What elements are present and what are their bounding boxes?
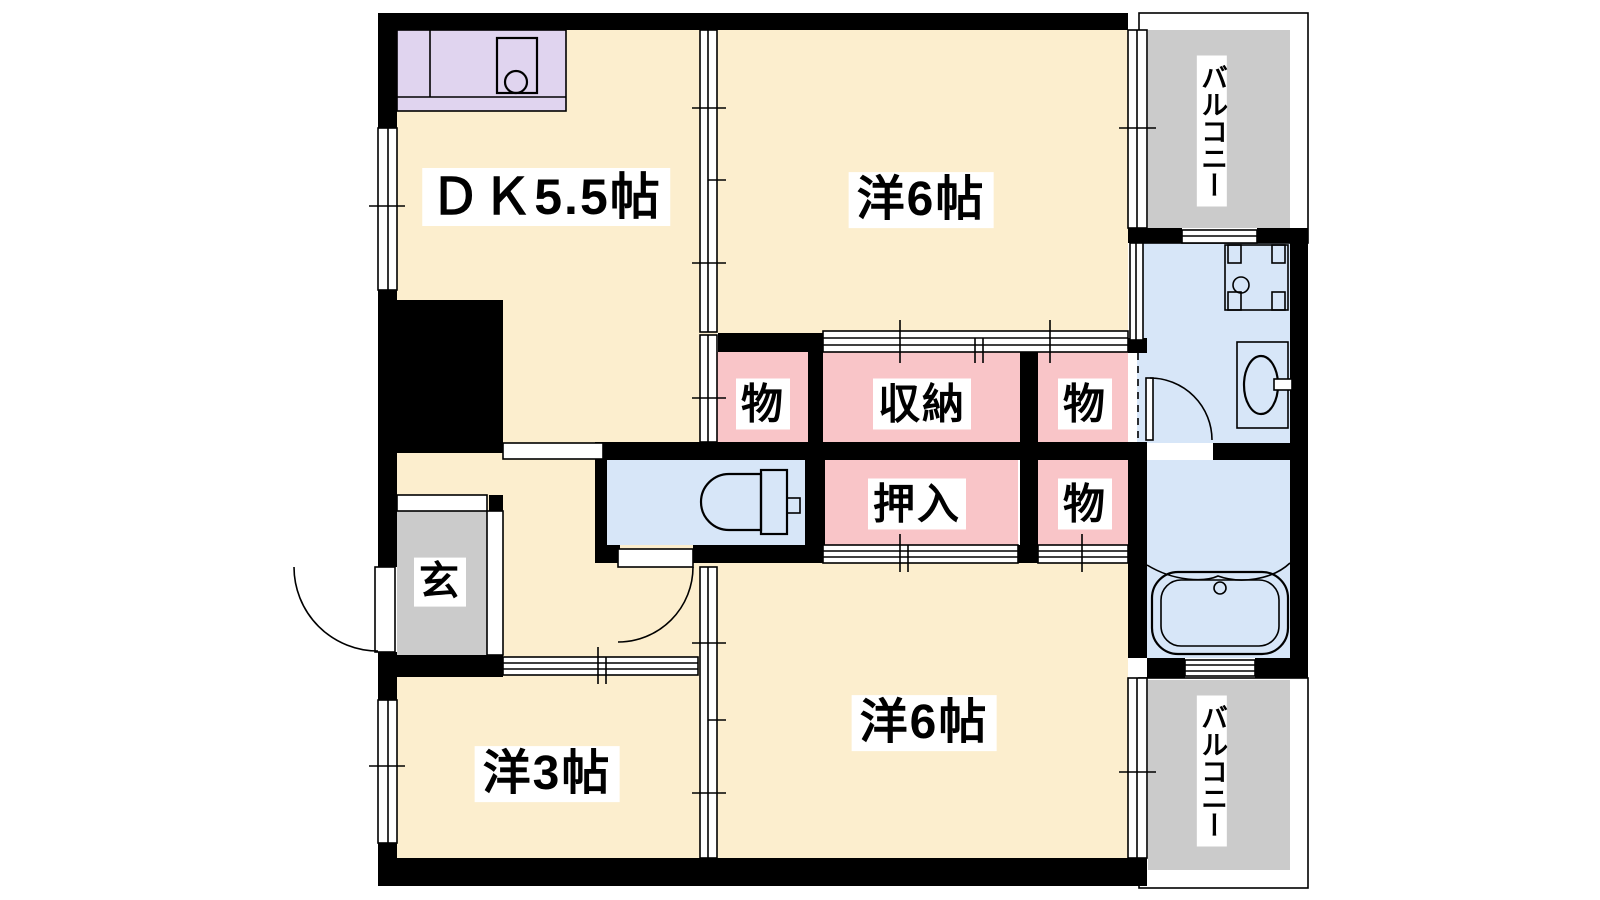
sliding-door-western3-western6 <box>692 567 726 858</box>
sliding-door-dk-western6 <box>692 30 726 332</box>
sliding-door-closet-top-left <box>692 335 726 442</box>
room-label-dk: ＤＫ5.5帖 <box>422 168 670 226</box>
toilet-door <box>618 549 693 642</box>
room-label-oshiire: 押入 <box>868 478 966 529</box>
vanity-sink <box>1237 342 1292 428</box>
bathtub-fixture <box>1147 563 1290 654</box>
kitchen-counter <box>397 30 566 111</box>
room-label-genkan: 玄 <box>414 558 466 607</box>
opening-washroom-entry <box>1130 243 1143 441</box>
window-western3-left <box>369 700 405 843</box>
sliding-door-closet-bottom-right <box>1038 534 1128 572</box>
symbols-overlay <box>0 0 1600 900</box>
washing-machine-pan <box>1225 245 1288 310</box>
window-western6-bottom-balcony <box>1119 678 1156 858</box>
toilet-fixture <box>701 470 800 534</box>
sliding-door-storage-main-top <box>823 320 1128 363</box>
room-label-western3: 洋3帖 <box>475 746 620 802</box>
room-label-balcony-top: バルコニー <box>1197 56 1227 207</box>
window-dk-left <box>369 128 405 290</box>
entrance-door <box>294 567 395 652</box>
window-balcony-washroom <box>1182 230 1257 243</box>
window-bathroom-balcony <box>1185 660 1255 676</box>
room-label-closet-top-right: 物 <box>1058 378 1112 429</box>
room-label-closet-bottom-right: 物 <box>1058 478 1112 529</box>
window-western6-top-balcony <box>1119 30 1156 228</box>
room-label-western6-top: 洋6帖 <box>849 172 994 228</box>
sliding-door-oshiire <box>823 534 1018 572</box>
room-label-western6-bottom: 洋6帖 <box>852 695 997 751</box>
opening-dk-hall <box>503 443 603 459</box>
floor-plan: ＤＫ5.5帖 洋6帖 洋6帖 洋3帖 玄 物 収納 物 押入 物 バルコニー バ… <box>0 0 1600 900</box>
bathroom-door <box>1146 378 1213 460</box>
room-label-closet-top-left: 物 <box>736 378 790 429</box>
sliding-door-hall-western3 <box>503 647 698 684</box>
room-label-storage-main: 収納 <box>873 378 971 429</box>
room-label-balcony-bottom: バルコニー <box>1197 696 1227 847</box>
